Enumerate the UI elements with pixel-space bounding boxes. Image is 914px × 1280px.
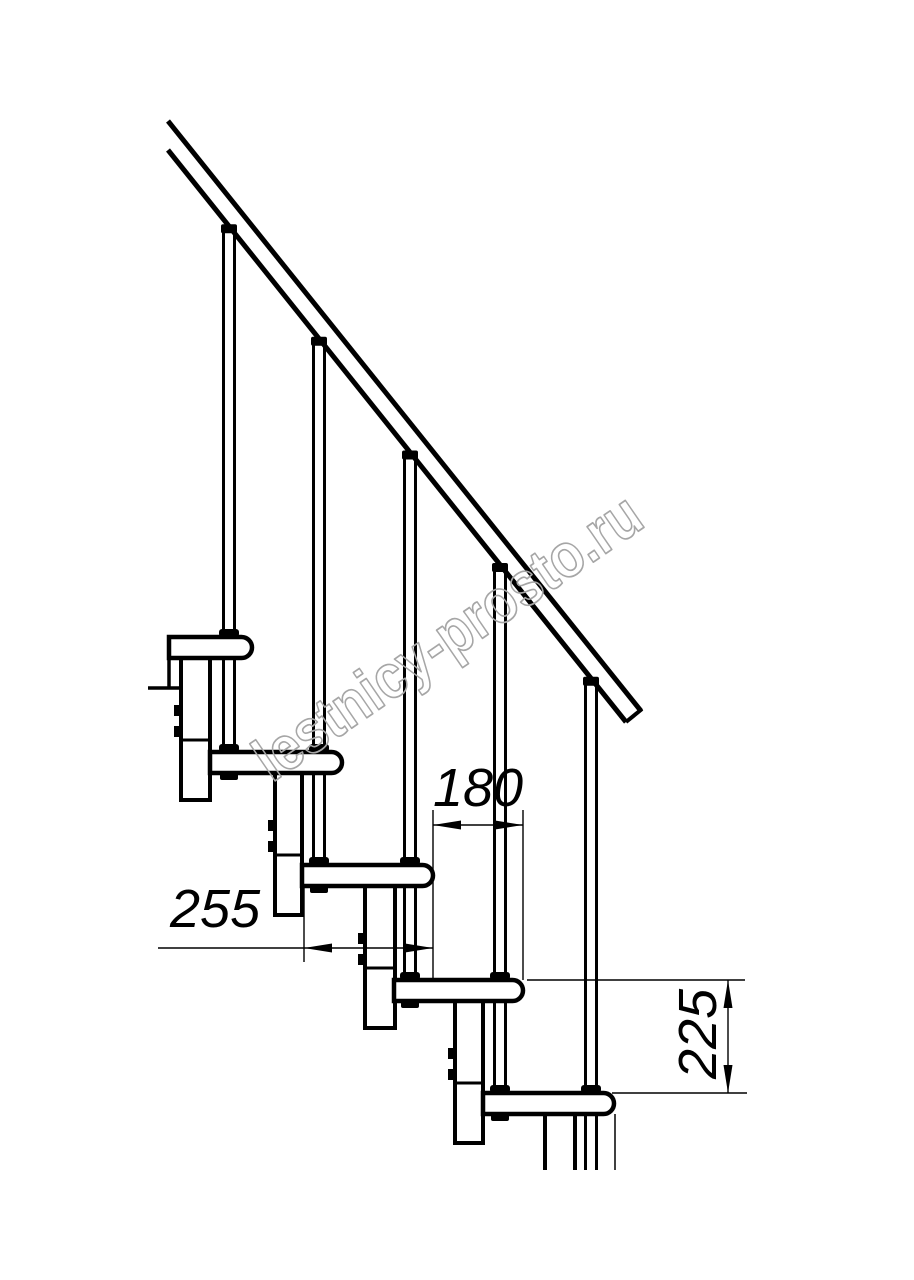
tread [394, 980, 523, 1001]
arrowhead-left [304, 944, 332, 953]
baluster-upper-segment [586, 684, 597, 1093]
step-module-5 [483, 677, 614, 1170]
baluster-rail-cap [402, 451, 418, 460]
extension-lines [433, 810, 523, 980]
arrowhead-left [433, 821, 461, 830]
dimension-label-180: 180 [433, 758, 523, 818]
baluster-lower-segment [314, 773, 325, 865]
support-column-cut [545, 1114, 575, 1170]
dimension-step-rise: 225 [527, 980, 747, 1093]
upper-left-cut-mark [148, 657, 181, 688]
baluster-collar [490, 972, 510, 980]
dimension-step-run: 180 [433, 758, 523, 980]
column-bolt [448, 1069, 457, 1080]
baluster-lower-segment [224, 658, 235, 752]
baluster-lower-segment [405, 886, 416, 980]
column-bolt [448, 1048, 457, 1059]
baluster-rail-cap [311, 337, 327, 346]
tread [302, 865, 433, 886]
support-column [365, 884, 395, 1028]
dimension-label-255: 255 [169, 879, 261, 939]
tread [483, 1093, 614, 1114]
handrail-end-cap [626, 709, 642, 722]
arrowhead-right [405, 944, 433, 953]
baluster-rail-cap [583, 677, 599, 686]
baluster-upper-segment [224, 231, 235, 637]
column-bolt [268, 820, 277, 831]
column-bolt [358, 933, 367, 944]
baluster-lower-segment [586, 1114, 597, 1170]
support-column [455, 999, 483, 1143]
baluster-rail-cap [221, 224, 237, 233]
baluster-collar [400, 857, 420, 865]
staircase-drawing-page: 180 255 225 lestnicy-prosto.ru [0, 0, 914, 1280]
arrowhead-right [495, 821, 523, 830]
column-bolt [174, 705, 183, 716]
tread [169, 637, 252, 658]
dimension-label-225: 225 [668, 988, 728, 1080]
watermark-text: lestnicy-prosto.ru [241, 480, 655, 795]
baluster-collar [219, 629, 239, 637]
step-module-1 [169, 224, 252, 800]
baluster-lower-segment [495, 1001, 506, 1093]
support-column [181, 656, 210, 800]
column-bolt [268, 841, 277, 852]
stair-drawing: 180 255 225 lestnicy-prosto.ru [0, 0, 914, 1280]
column-bolt [358, 954, 367, 965]
column-bolt [174, 726, 183, 737]
step-module-2 [210, 337, 342, 915]
baluster-collar [581, 1085, 601, 1093]
